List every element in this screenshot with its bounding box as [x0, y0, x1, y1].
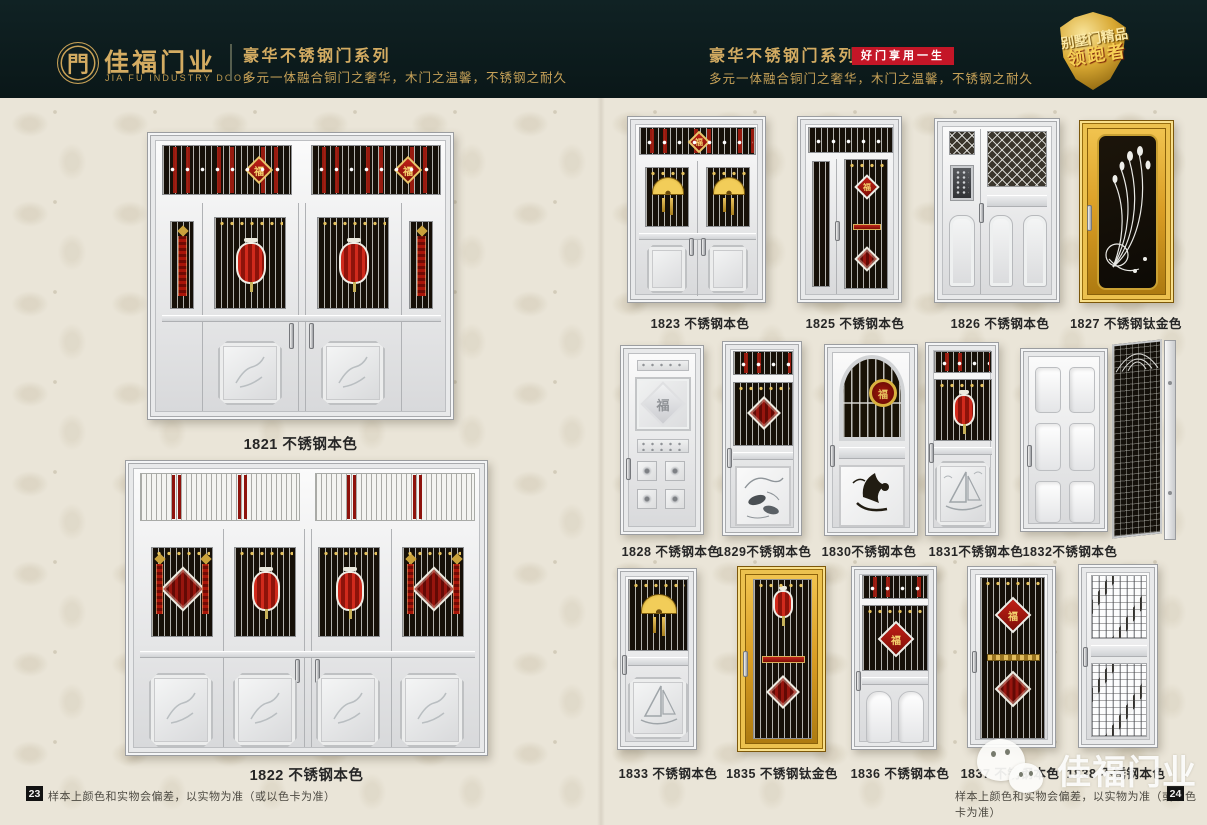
door-1835 — [737, 566, 826, 752]
watermark-text: 佳福门业 — [1057, 745, 1197, 794]
door-edge — [1164, 340, 1176, 540]
door-1831 — [925, 342, 999, 536]
door-1823: 福 — [627, 116, 766, 303]
door-1837: 福 — [967, 566, 1056, 748]
shield-badge-icon: 别墅门精品 领跑者 — [1048, 10, 1152, 96]
door-1822 — [125, 460, 488, 756]
door-1821: 福 福 — [147, 132, 454, 420]
door-1828: 福 — [620, 345, 704, 535]
left-series-subtitle: 多元一体融合铜门之奢华，木门之温馨，不锈钢之耐久 — [243, 67, 567, 86]
door-1826 — [934, 118, 1060, 303]
door-1830: 福 — [824, 344, 918, 536]
door-label-1822: 1822 不锈钢本色 — [125, 764, 488, 785]
door-1833 — [617, 568, 697, 750]
open-screen-door — [1112, 339, 1162, 538]
door-1836: 福 — [851, 566, 937, 750]
left-series-title: 豪华不锈钢门系列 — [243, 42, 391, 66]
right-series-title: 豪华不锈钢门系列 — [709, 42, 857, 66]
page-number-left: 23 — [26, 786, 43, 801]
door-1829 — [722, 341, 802, 536]
door-1825: 福 — [797, 116, 902, 303]
door-label-1825: 1825 不锈钢本色 — [775, 313, 935, 332]
page-crease — [597, 98, 605, 825]
door-label-1823: 1823 不锈钢本色 — [620, 313, 780, 332]
brand-logo-icon: 門 — [57, 42, 99, 84]
door-label-1827: 1827 不锈钢钛金色 — [1046, 313, 1206, 332]
watermark: 佳福门业 — [975, 733, 1200, 805]
wechat-icon-small — [1009, 763, 1043, 793]
door-1832 — [1020, 340, 1160, 540]
door-1838 — [1078, 564, 1158, 748]
door-1827 — [1079, 120, 1174, 303]
header-banner: 門 佳福门业 JIA FU INDUSTRY DOOR 豪华不锈钢门系列 多元一… — [0, 0, 1207, 98]
disclaimer-left: 样本上颜色和实物会偏差，以实物为准（或以色卡为准） — [48, 788, 336, 804]
door-label-1832: 1832不锈钢本色 — [990, 541, 1150, 560]
door-label-1821: 1821 不锈钢本色 — [147, 433, 454, 454]
catalog-spread: 門 佳福门业 JIA FU INDUSTRY DOOR 豪华不锈钢门系列 多元一… — [0, 0, 1207, 825]
right-series-subtitle: 多元一体融合铜门之奢华，木门之温馨，不锈钢之耐久 — [709, 68, 1033, 87]
header-divider — [230, 44, 232, 81]
slogan-badge: 好门享用一生 — [852, 47, 954, 65]
